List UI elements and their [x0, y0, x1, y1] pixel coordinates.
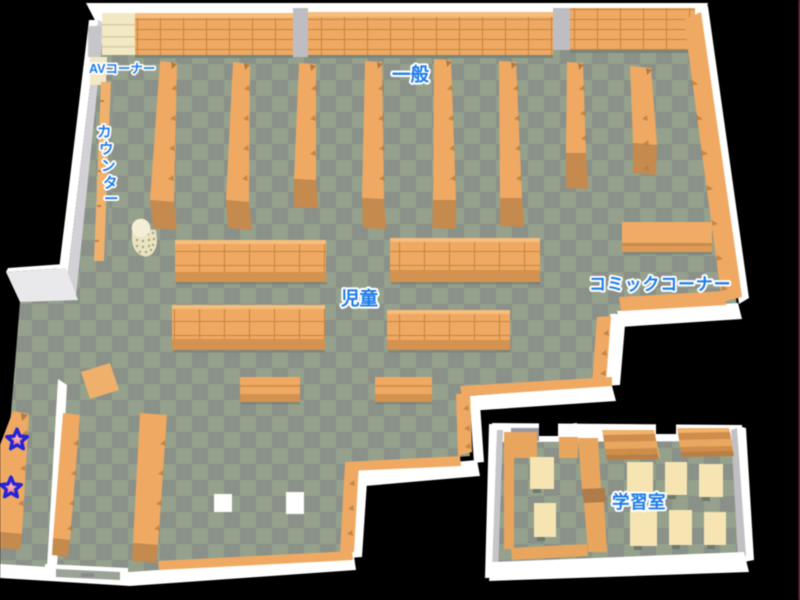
svg-text:AVコーナー: AVコーナー	[89, 62, 155, 76]
svg-text:ン: ン	[101, 159, 116, 175]
svg-text:コミックコーナー: コミックコーナー	[589, 275, 731, 294]
svg-text:児童: 児童	[340, 288, 379, 309]
svg-text:学習室: 学習室	[612, 492, 666, 512]
svg-text:タ: タ	[103, 175, 118, 192]
svg-text:ー: ー	[104, 192, 119, 208]
svg-text:カ: カ	[97, 124, 112, 141]
svg-text:一般: 一般	[392, 64, 430, 85]
svg-text:ウ: ウ	[99, 141, 114, 158]
